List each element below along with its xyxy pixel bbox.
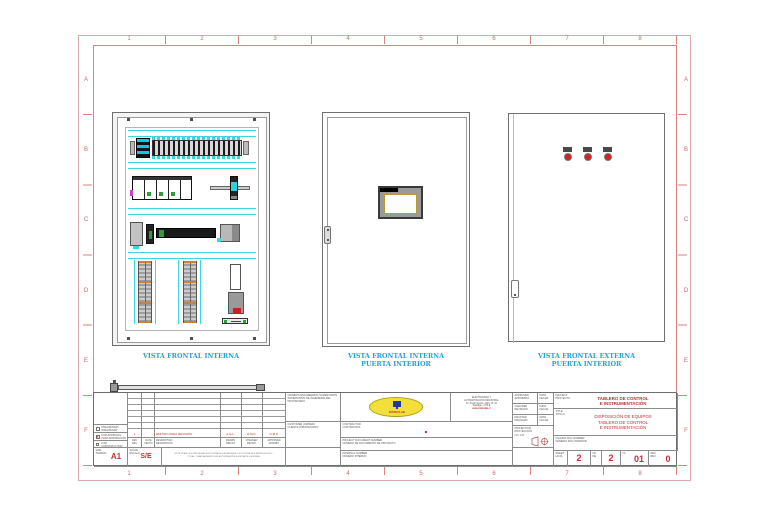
duct-end-cap: [110, 383, 118, 392]
customer-cell: CUSTOMER (OWNER) CLIENTE (PROPIETARIO): [286, 422, 341, 448]
grid-ticks-bottom: [93, 466, 677, 475]
titleblock-empty-cell: [286, 448, 341, 467]
pilot-light-bracket: [563, 147, 572, 152]
spare-duct: [230, 264, 241, 290]
grid-col-label: 7: [557, 34, 577, 44]
hmi-panel: [378, 186, 423, 219]
company-website: www.instrulab.cl: [451, 408, 512, 411]
company-logo: INSTRULAB: [369, 397, 423, 417]
status-for-construction: FOR CONSTRUCTION PARA CONSTRUCCIÓN: [94, 441, 128, 448]
drafted-date-cell: DATE FECHA: [538, 415, 554, 426]
grid-col-label: 4: [338, 469, 358, 479]
terminal-strip-column: [183, 261, 197, 323]
grid-col-label: 1: [119, 34, 139, 44]
grid-col-label: 6: [484, 34, 504, 44]
grid-col-label: 7: [557, 469, 577, 479]
grid-col-label: 4: [338, 34, 358, 44]
internal-number-cell: INTERNAL NUMBER NÚMERO INTERNO: [341, 451, 513, 467]
end-clamp: [130, 141, 135, 155]
scale-value: S/E: [134, 453, 158, 460]
checked-cell: CHECKED REVISADO: [513, 404, 538, 415]
cable-duct: [128, 252, 256, 259]
grid-row-label: B: [681, 145, 691, 155]
grid-col-label: 8: [630, 469, 650, 479]
inner-door-view: [322, 112, 470, 347]
terminal-block-row: [152, 140, 242, 156]
cable-duct-vertical: [155, 260, 156, 324]
cable-duct-vertical: [200, 260, 201, 324]
cable-duct-vertical: [134, 260, 135, 324]
duct-top-view: [118, 385, 258, 390]
mounting-bolt: [127, 337, 130, 340]
grid-row-label: D: [681, 286, 691, 296]
door-handle: [511, 280, 519, 298]
approved-date-cell: DATE FECHA: [538, 393, 554, 404]
class-cell: CL 01: [621, 451, 649, 467]
relay-block: [220, 224, 240, 242]
grid-row-label: D: [81, 286, 91, 296]
contractor-cell: CONTRACTOR CONTRATISTA: [341, 422, 513, 438]
checked-date-cell: DATE FECHA: [538, 404, 554, 415]
power-supply: [146, 224, 154, 244]
grid-row-label: A: [81, 75, 91, 85]
mounting-bolt: [253, 337, 256, 340]
pilot-light-bracket: [603, 147, 612, 152]
caption-internal-view: VISTA FRONTAL INTERNA: [112, 352, 270, 360]
titleblock-empty-cell: [94, 393, 128, 425]
size-cell: SIZE TAMAÑO A1: [94, 448, 128, 467]
caption-outer-door: VISTA FRONTAL EXTERNA PUERTA INTERIOR: [508, 352, 665, 368]
grid-col-label: 2: [192, 469, 212, 479]
main-breaker: [136, 138, 150, 158]
grid-ticks-left: [83, 45, 92, 466]
of-label-cell: OF DE: [591, 451, 602, 467]
end-clamp: [243, 141, 249, 155]
grid-row-label: F: [681, 426, 691, 436]
projection-symbol-icon: [531, 436, 551, 447]
grid-col-label: 8: [630, 34, 650, 44]
grid-row-label: C: [81, 215, 91, 225]
owner-supervision-cell: OWNER'S ENGINEERING SUPERVISION SUPERVIS…: [286, 393, 341, 422]
pilot-light-bracket: [583, 147, 592, 152]
grid-row-label: C: [681, 215, 691, 225]
grid-ticks-right: [678, 45, 687, 466]
folder-doc-number-cell: FOLDER DOC NUMBER NÚMERO DOC INTERIOR: [554, 436, 678, 451]
hmi-screen: [384, 194, 417, 214]
drawing-sheet: 1 2 3 4 5 6 7 8 1 2 3 4 5 6 7 8 A B C D …: [0, 0, 770, 515]
mounting-bolt: [190, 337, 193, 340]
status-preliminary: PRELIMINARY PRELIMINAR: [94, 425, 128, 433]
sheet-label-cell: SHEET HOJA: [554, 451, 568, 467]
mounting-bolt: [127, 118, 130, 121]
grid-row-label: E: [81, 356, 91, 366]
cable-duct-vertical: [178, 260, 179, 324]
cabinet-internal-view: [112, 112, 270, 346]
revision-entry-row: 1 EMITIDO PARA REVISIÓN A.G.L. G.M.P. G.…: [128, 430, 286, 438]
scale-cell: SCALE ESCALA S/E: [128, 448, 162, 467]
plc-indicator: [130, 190, 133, 196]
pilot-light: [604, 153, 612, 161]
rev-cell: REV REV 0: [649, 451, 677, 467]
drawing-title: DISPOSICIÓN DE EQUIPOS TABLERO DE CONTRO…: [568, 414, 678, 431]
logo-text: INSTRULAB: [370, 410, 424, 414]
grid-col-label: 6: [484, 469, 504, 479]
status-for-approval: X FOR APPROVAL PARA APROBACIÓN: [94, 433, 128, 441]
duct-end-cap: [256, 384, 265, 391]
pilot-light: [584, 153, 592, 161]
grid-col-label: 3: [265, 34, 285, 44]
revision-header-row: REV REV DATE FECHA DESCRIPTION DESCRIPCI…: [128, 438, 286, 448]
grid-col-label: 3: [265, 469, 285, 479]
cable-duct: [128, 130, 256, 137]
sheet-value-cell: 2: [568, 451, 591, 467]
plc-rack: [132, 176, 192, 200]
projection-cell: PROJECTION PROYECCIÓN ISO 128: [513, 426, 554, 448]
door-handle: [324, 226, 331, 244]
title-cell: TITLE TÍTULO DISPOSICIÓN DE EQUIPOS TABL…: [554, 409, 678, 436]
size-value: A1: [104, 452, 128, 461]
titleblock-empty-cell: [513, 448, 554, 467]
grid-col-label: 1: [119, 469, 139, 479]
mounting-bolt: [253, 118, 256, 121]
drafted-cell: DRAFTED DIBUJADO: [513, 415, 538, 426]
grid-ticks-top: [93, 35, 677, 44]
project-cell: PROJECT PROYECTO TABLERO DE CONTROL E IN…: [554, 393, 678, 409]
ground-bar: [222, 318, 248, 324]
checkbox: [96, 443, 99, 446]
logo-cell: INSTRULAB: [341, 393, 451, 422]
grid-col-label: 5: [411, 34, 431, 44]
grid-row-label: B: [81, 145, 91, 155]
grid-row-label: E: [681, 356, 691, 366]
grid-row-label: F: [81, 426, 91, 436]
note-cell: ESTE PLANO ES PROPIEDAD EXCLUSIVA DE LA …: [162, 448, 286, 467]
cable-duct: [128, 162, 256, 169]
grid-row-label: A: [681, 75, 691, 85]
project-name: TABLERO DE CONTROL E INSTRUMENTACIÓN: [568, 396, 678, 406]
title-block: PRELIMINARY PRELIMINAR X FOR APPROVAL PA…: [93, 392, 677, 466]
checkbox: [96, 427, 100, 431]
mounting-plate: [125, 127, 259, 331]
company-info-cell: ELECTRICIDAD Y AUTOMATIZACIÓN INDUSTRIAL…: [451, 393, 513, 422]
hmi-bezel-tab: [380, 188, 398, 192]
caption-inner-door: VISTA FRONTAL INTERNA PUERTA INTERIOR: [322, 352, 470, 368]
contractor-mark: [425, 431, 427, 433]
pilot-light: [564, 153, 572, 161]
transformer: [130, 222, 143, 246]
project-doc-number-cell: PROJECT DOCUMENT NUMBER NÚMERO DE DOCUME…: [341, 438, 513, 451]
rail-device: [230, 176, 238, 200]
of-value-cell: 2: [602, 451, 621, 467]
cable-duct: [128, 208, 256, 215]
filter-module: [156, 228, 216, 238]
status-mark: X: [96, 434, 99, 439]
mounting-bolt: [190, 118, 193, 121]
approved-cell: APPROVED APROBADO: [513, 393, 538, 404]
outer-door-view: [508, 113, 665, 342]
grid-col-label: 2: [192, 34, 212, 44]
surge-protector: [228, 292, 244, 314]
grid-col-label: 5: [411, 469, 431, 479]
terminal-strip-column: [138, 261, 152, 323]
